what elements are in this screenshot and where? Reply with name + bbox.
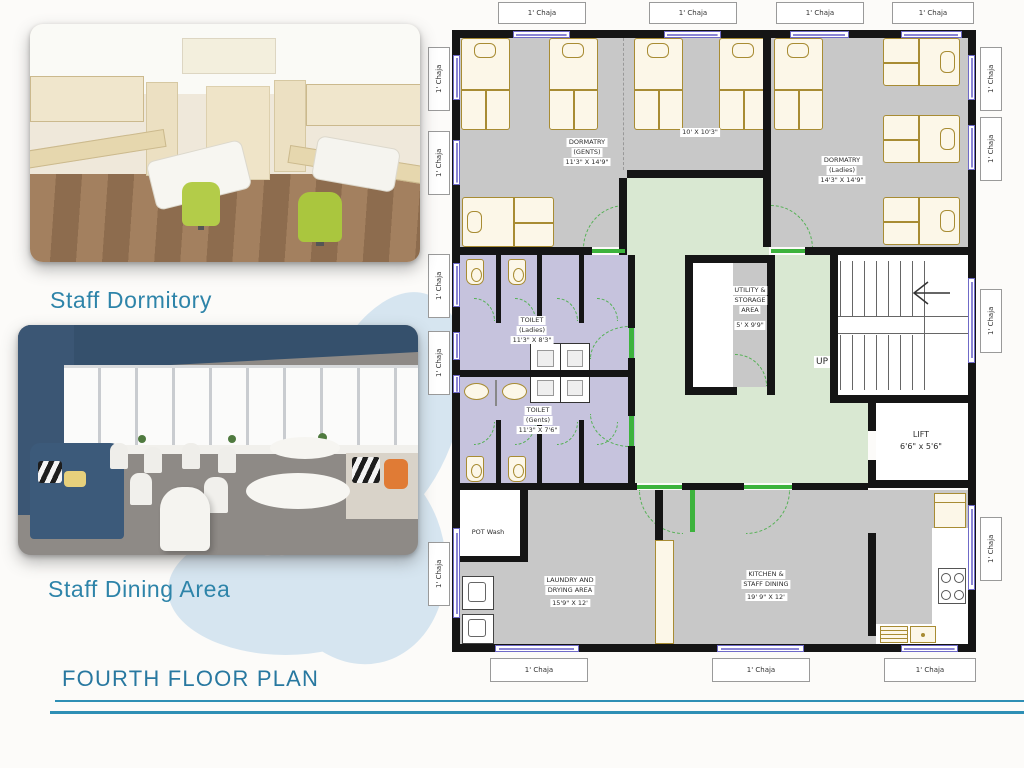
round-table-front	[246, 473, 350, 509]
room-dims: 5' X 9'9"	[734, 321, 766, 330]
caption-staff-dining: Staff Dining Area	[48, 576, 230, 603]
wall	[685, 255, 693, 395]
wall	[830, 395, 968, 403]
bed	[883, 38, 960, 86]
window	[968, 278, 975, 363]
door-sill	[629, 328, 634, 358]
room-name: AREA	[739, 306, 761, 315]
room-dims: 11'3" X 7'6"	[517, 426, 560, 435]
chair	[144, 447, 162, 473]
chaja-text: 1' Chaja	[806, 9, 834, 17]
wall	[628, 358, 635, 416]
wall	[460, 247, 592, 255]
room-name: TOILET	[519, 316, 546, 325]
door-sill	[771, 249, 805, 253]
room-label-toilet-gents: TOILET (Gents) 11'3" X 7'6"	[517, 406, 560, 434]
stall-partition	[496, 255, 501, 323]
room-label-lift: LIFT 6'6" x 5'6"	[898, 430, 944, 453]
chaja-label: 1' Chaja	[428, 542, 450, 606]
chaja-text: 1' Chaja	[435, 65, 443, 93]
door-panel	[655, 540, 674, 644]
bed	[883, 115, 960, 163]
room-dims: 15'9" X 12'	[550, 599, 590, 608]
gas-stove	[938, 568, 966, 604]
door-sill	[637, 485, 682, 489]
wash-basin	[502, 383, 527, 400]
wall	[763, 38, 771, 247]
wall	[460, 483, 637, 490]
bed	[462, 197, 554, 247]
kitchen-sink	[910, 626, 936, 643]
room-dims: 19' 9" X 12'	[745, 593, 787, 602]
window	[453, 332, 460, 360]
room-label-laundry: LAUNDRY AND DRYING AREA 15'9" X 12'	[544, 576, 595, 607]
photo-staff-dormitory	[30, 24, 420, 262]
chaja-text: 1' Chaja	[435, 149, 443, 177]
zigzag-pillow	[38, 461, 62, 483]
room-dims: 10' X 10'3"	[680, 128, 720, 137]
corridor	[627, 178, 769, 255]
room-name: POT Wash	[470, 528, 507, 537]
chaja-text: 1' Chaja	[435, 272, 443, 300]
room-name: DORMATRY	[567, 138, 607, 147]
room-label-mid: 10' X 10'3"	[680, 128, 720, 137]
room-sub: (Gents)	[524, 416, 552, 425]
up-label: UP	[814, 356, 830, 368]
room-name: LAUNDRY AND	[544, 576, 595, 585]
plant	[138, 435, 146, 443]
chair-left	[182, 182, 220, 226]
room-dims: 6'6" x 5'6"	[898, 442, 944, 453]
caption-staff-dormitory: Staff Dormitory	[50, 287, 212, 314]
room-label-dormitory-ladies: DORMATRY (Ladies) 14'3" X 14'9"	[819, 156, 866, 184]
stair-direction-arrow	[904, 278, 952, 308]
wall	[830, 255, 838, 395]
sink-drainboard	[880, 626, 908, 643]
window	[901, 31, 962, 38]
chaja-label: 1' Chaja	[428, 47, 450, 111]
door-sill	[592, 249, 625, 253]
chaja-label: 1' Chaja	[776, 2, 864, 24]
room-label-utility: UTILITY & STORAGE AREA 5' X 9'9"	[732, 286, 767, 330]
wall	[868, 533, 876, 636]
shelf-unit-right	[306, 84, 420, 126]
chaja-text: 1' Chaja	[435, 560, 443, 588]
corridor	[635, 395, 868, 483]
room-pot-wash	[460, 490, 528, 562]
chaja-label: 1' Chaja	[428, 131, 450, 195]
wall	[685, 255, 775, 263]
urinal-partition	[495, 380, 497, 406]
room-sub: (Ladies)	[827, 166, 857, 175]
chaja-text: 1' Chaja	[987, 65, 995, 93]
wall	[619, 178, 627, 255]
room-label-dormitory-gents: DORMATRY (GENTS) 11'3" X 14'9"	[564, 138, 611, 166]
chaja-label: 1' Chaja	[490, 658, 588, 682]
wash-basin	[464, 383, 489, 400]
dashed-partition	[623, 38, 624, 170]
chair-foreground	[160, 487, 210, 551]
floor-plan: 1' Chaja 1' Chaja 1' Chaja 1' Chaja 1' C…	[452, 28, 976, 662]
room-label-pot-wash: POT Wash	[470, 528, 507, 537]
wall	[627, 170, 771, 178]
yellow-pillow	[64, 471, 86, 487]
room-name: TOILET	[525, 406, 552, 415]
room-name: UTILITY &	[732, 286, 767, 295]
room-dims: 14'3" X 14'9"	[819, 176, 866, 185]
window	[968, 505, 975, 590]
window-band	[64, 365, 418, 450]
chaja-label: 1' Chaja	[712, 658, 810, 682]
chaja-text: 1' Chaja	[679, 9, 707, 17]
room-dims: 11'3" X 8'3"	[511, 336, 554, 345]
chaja-label: 1' Chaja	[428, 331, 450, 395]
room-name: STORAGE	[733, 296, 768, 305]
window	[453, 263, 460, 307]
toilet-wc	[508, 456, 526, 482]
window	[664, 31, 721, 38]
shelf-unit-left	[30, 76, 144, 122]
toilet-wc	[508, 259, 526, 285]
room-label-kitchen: KITCHEN & STAFF DINING 19' 9" X 12'	[741, 570, 790, 601]
bed	[883, 197, 960, 245]
stair-flight	[840, 335, 924, 390]
bed	[774, 38, 823, 130]
chaja-label: 1' Chaja	[428, 254, 450, 318]
room-name: KITCHEN &	[746, 570, 785, 579]
wall	[628, 446, 635, 488]
zigzag-pillow	[352, 457, 380, 483]
chaja-text: 1' Chaja	[525, 666, 553, 674]
door-sill	[629, 416, 634, 446]
window	[453, 140, 460, 185]
divider-line-bottom	[50, 711, 1024, 714]
chaja-label: 1' Chaja	[649, 2, 737, 24]
toilet-wc	[466, 456, 484, 482]
window	[495, 645, 579, 652]
window	[453, 528, 460, 618]
stair-landing-line	[838, 316, 968, 317]
divider-line-top	[55, 700, 1024, 702]
door-leaf	[690, 490, 695, 532]
chaja-label: 1' Chaja	[892, 2, 974, 24]
room-sub: (GENTS)	[571, 148, 602, 157]
chaja-text: 1' Chaja	[987, 307, 995, 335]
window	[453, 375, 460, 393]
chair	[218, 447, 236, 473]
window	[968, 55, 975, 100]
wall	[520, 490, 528, 556]
chaja-text: 1' Chaja	[528, 9, 556, 17]
bed	[461, 38, 510, 130]
room-name: STAFF DINING	[741, 580, 790, 589]
chair	[182, 443, 200, 469]
wall	[767, 255, 775, 395]
room-dims: 11'3" X 14'9"	[564, 158, 611, 167]
chaja-label: 1' Chaja	[980, 117, 1002, 181]
kitchen-counter	[934, 493, 966, 528]
room-label-toilet-ladies: TOILET (Ladies) 11'3" X 8'3"	[511, 316, 554, 344]
chaja-text: 1' Chaja	[919, 9, 947, 17]
window	[968, 125, 975, 170]
stall-partition	[496, 420, 501, 488]
chaja-text: 1' Chaja	[916, 666, 944, 674]
window	[717, 645, 804, 652]
room-kitchen	[663, 490, 968, 644]
toilet-wc	[466, 259, 484, 285]
presentation-slide: a Staff Dormitory	[0, 0, 1024, 768]
chair	[130, 473, 152, 505]
wall	[628, 255, 635, 328]
chaja-label: 1' Chaja	[884, 658, 976, 682]
ceiling-light	[182, 38, 276, 74]
chaja-label: 1' Chaja	[980, 517, 1002, 581]
room-name: DORMATRY	[822, 156, 862, 165]
window	[901, 645, 958, 652]
wall	[460, 370, 635, 377]
room-name: LIFT	[911, 430, 931, 441]
chaja-label: 1' Chaja	[498, 2, 586, 24]
wall	[792, 483, 868, 490]
wall	[682, 483, 744, 490]
orange-pillow	[384, 459, 408, 489]
chair	[110, 443, 128, 469]
chaja-text: 1' Chaja	[747, 666, 775, 674]
bed	[634, 38, 683, 130]
wall	[868, 480, 968, 488]
chaja-text: 1' Chaja	[987, 535, 995, 563]
wall	[805, 247, 968, 255]
window	[453, 55, 460, 100]
slide-title: FOURTH FLOOR PLAN	[62, 666, 319, 692]
washing-machine	[462, 576, 494, 610]
washing-machine	[462, 614, 494, 644]
bed	[719, 38, 768, 130]
chaja-text: 1' Chaja	[987, 135, 995, 163]
window	[513, 31, 570, 38]
wall	[868, 403, 876, 431]
bed	[549, 38, 598, 130]
stall-partition	[579, 255, 584, 323]
room-sub: (Ladies)	[517, 326, 547, 335]
wall	[460, 556, 528, 562]
room-utility	[693, 263, 733, 387]
room-name: DRYING AREA	[546, 586, 594, 595]
chaja-text: 1' Chaja	[435, 349, 443, 377]
chair-right	[298, 192, 342, 242]
plant	[228, 435, 236, 443]
door-sill	[744, 485, 792, 489]
chaja-label: 1' Chaja	[980, 47, 1002, 111]
stall-partition	[579, 420, 584, 488]
round-table-back	[270, 437, 340, 459]
stall-partition	[537, 255, 542, 323]
stair-landing-line	[838, 333, 968, 334]
photo-staff-dining	[18, 325, 418, 555]
up-text: UP	[814, 356, 830, 368]
window	[790, 31, 849, 38]
chaja-label: 1' Chaja	[980, 289, 1002, 353]
